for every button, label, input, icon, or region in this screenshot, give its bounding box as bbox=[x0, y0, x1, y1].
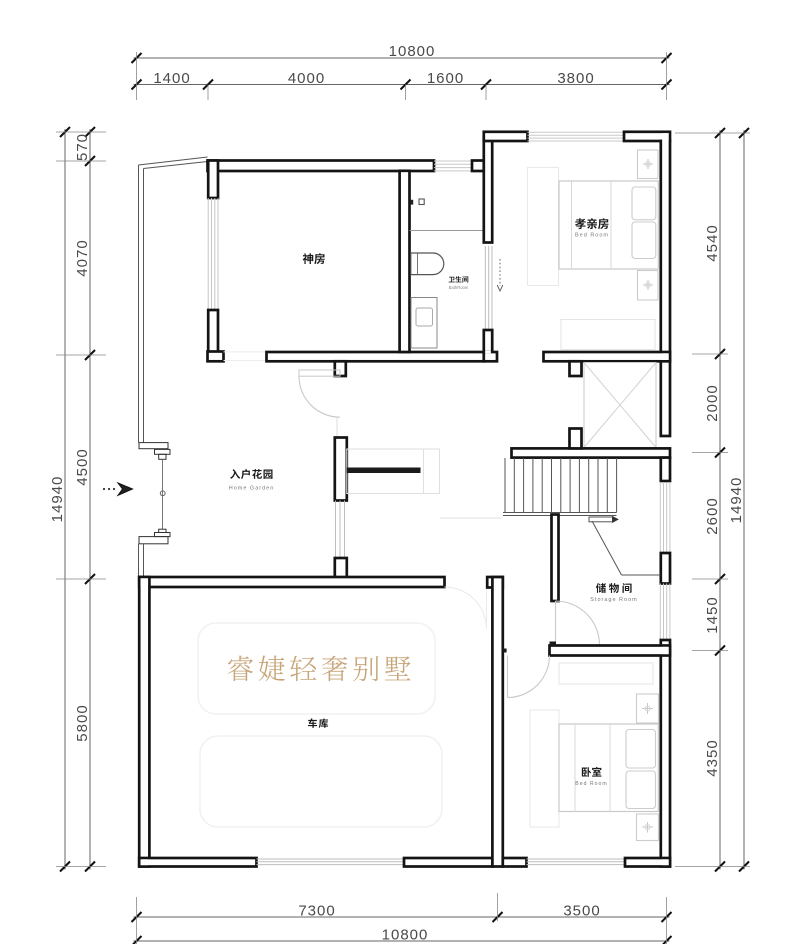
svg-text:4350: 4350 bbox=[704, 739, 721, 776]
svg-text:5800: 5800 bbox=[74, 704, 91, 741]
svg-text:1400: 1400 bbox=[153, 70, 190, 87]
svg-text:7300: 7300 bbox=[298, 903, 335, 920]
svg-text:4000: 4000 bbox=[288, 70, 325, 87]
svg-text:3800: 3800 bbox=[557, 70, 594, 87]
svg-text:BathRoom: BathRoom bbox=[449, 285, 469, 290]
svg-text:Bed Room: Bed Room bbox=[575, 233, 609, 239]
svg-text:4540: 4540 bbox=[704, 224, 721, 261]
svg-text:4500: 4500 bbox=[74, 448, 91, 485]
svg-text:Storage Room: Storage Room bbox=[590, 597, 637, 603]
svg-text:3500: 3500 bbox=[563, 903, 600, 920]
svg-text:Bed Room: Bed Room bbox=[575, 781, 608, 787]
svg-text:14940: 14940 bbox=[49, 476, 66, 523]
svg-text:14940: 14940 bbox=[728, 477, 745, 524]
svg-text:Home Garden: Home Garden bbox=[229, 486, 275, 492]
svg-text:2600: 2600 bbox=[704, 497, 721, 534]
svg-text:1600: 1600 bbox=[427, 70, 464, 87]
svg-text:4070: 4070 bbox=[74, 239, 91, 276]
svg-text:570: 570 bbox=[74, 133, 91, 161]
svg-text:2000: 2000 bbox=[704, 384, 721, 421]
svg-text:10800: 10800 bbox=[382, 927, 429, 944]
svg-text:10800: 10800 bbox=[389, 43, 436, 60]
svg-text:1450: 1450 bbox=[704, 596, 721, 633]
